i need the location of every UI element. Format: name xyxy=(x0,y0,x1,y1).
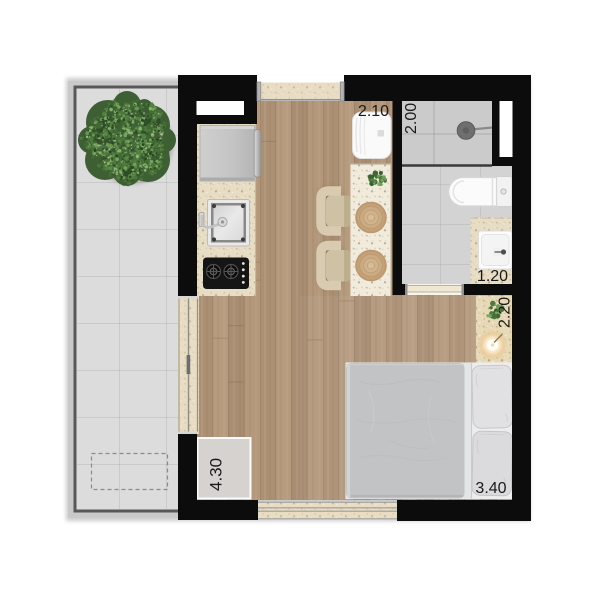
svg-text:4.30: 4.30 xyxy=(207,458,226,491)
svg-text:1.20: 1.20 xyxy=(477,268,508,285)
svg-text:2.10: 2.10 xyxy=(358,103,389,120)
svg-text:2.00: 2.00 xyxy=(403,103,420,134)
svg-text:3.40: 3.40 xyxy=(475,480,506,497)
svg-text:2.20: 2.20 xyxy=(497,297,514,328)
